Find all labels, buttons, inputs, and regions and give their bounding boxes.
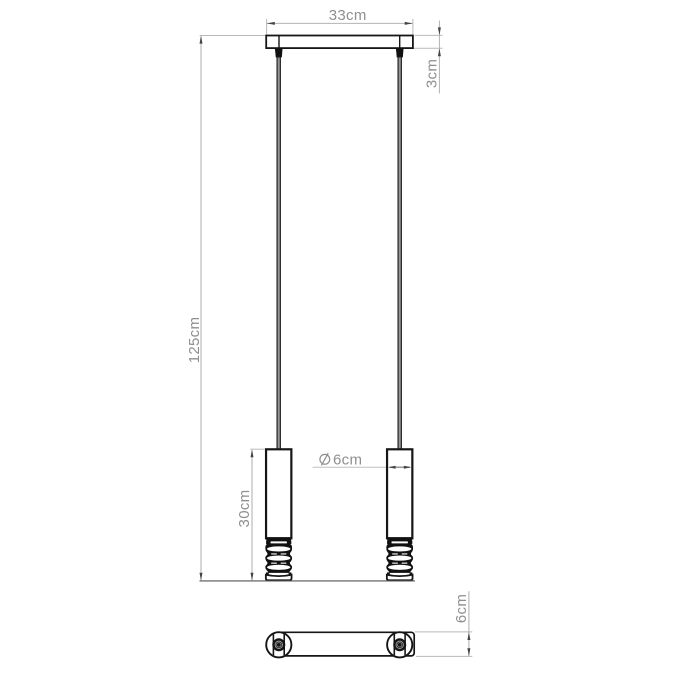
svg-text:6cm: 6cm <box>453 594 470 623</box>
svg-text:3cm: 3cm <box>424 59 441 88</box>
svg-text:30cm: 30cm <box>236 490 253 528</box>
svg-text:33cm: 33cm <box>329 7 367 24</box>
svg-text:125cm: 125cm <box>186 317 203 364</box>
svg-text:6cm: 6cm <box>333 451 362 468</box>
